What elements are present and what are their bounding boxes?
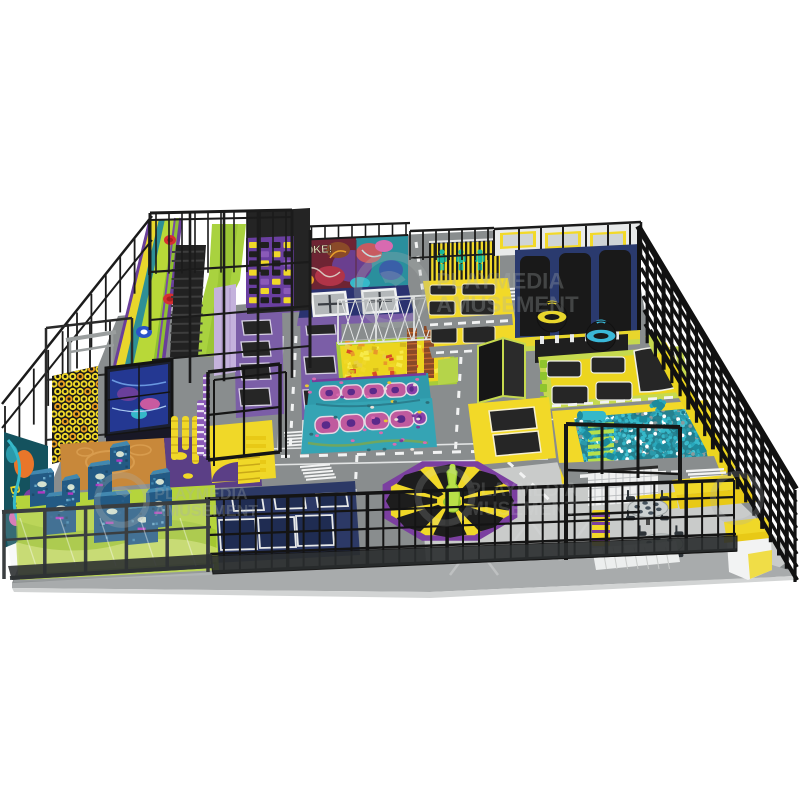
svg-text:PLAYMEDIA: PLAYMEDIA xyxy=(468,480,578,501)
svg-text:PLAYMEDIA: PLAYMEDIA xyxy=(154,485,248,503)
svg-text:AMUSEMENT: AMUSEMENT xyxy=(436,292,579,317)
svg-text:PLAYMEDIA: PLAYMEDIA xyxy=(436,268,564,293)
svg-text:MUSEMENT: MUSEMENT xyxy=(468,499,577,520)
svg-text:AMUSEMENT: AMUSEMENT xyxy=(154,502,258,520)
